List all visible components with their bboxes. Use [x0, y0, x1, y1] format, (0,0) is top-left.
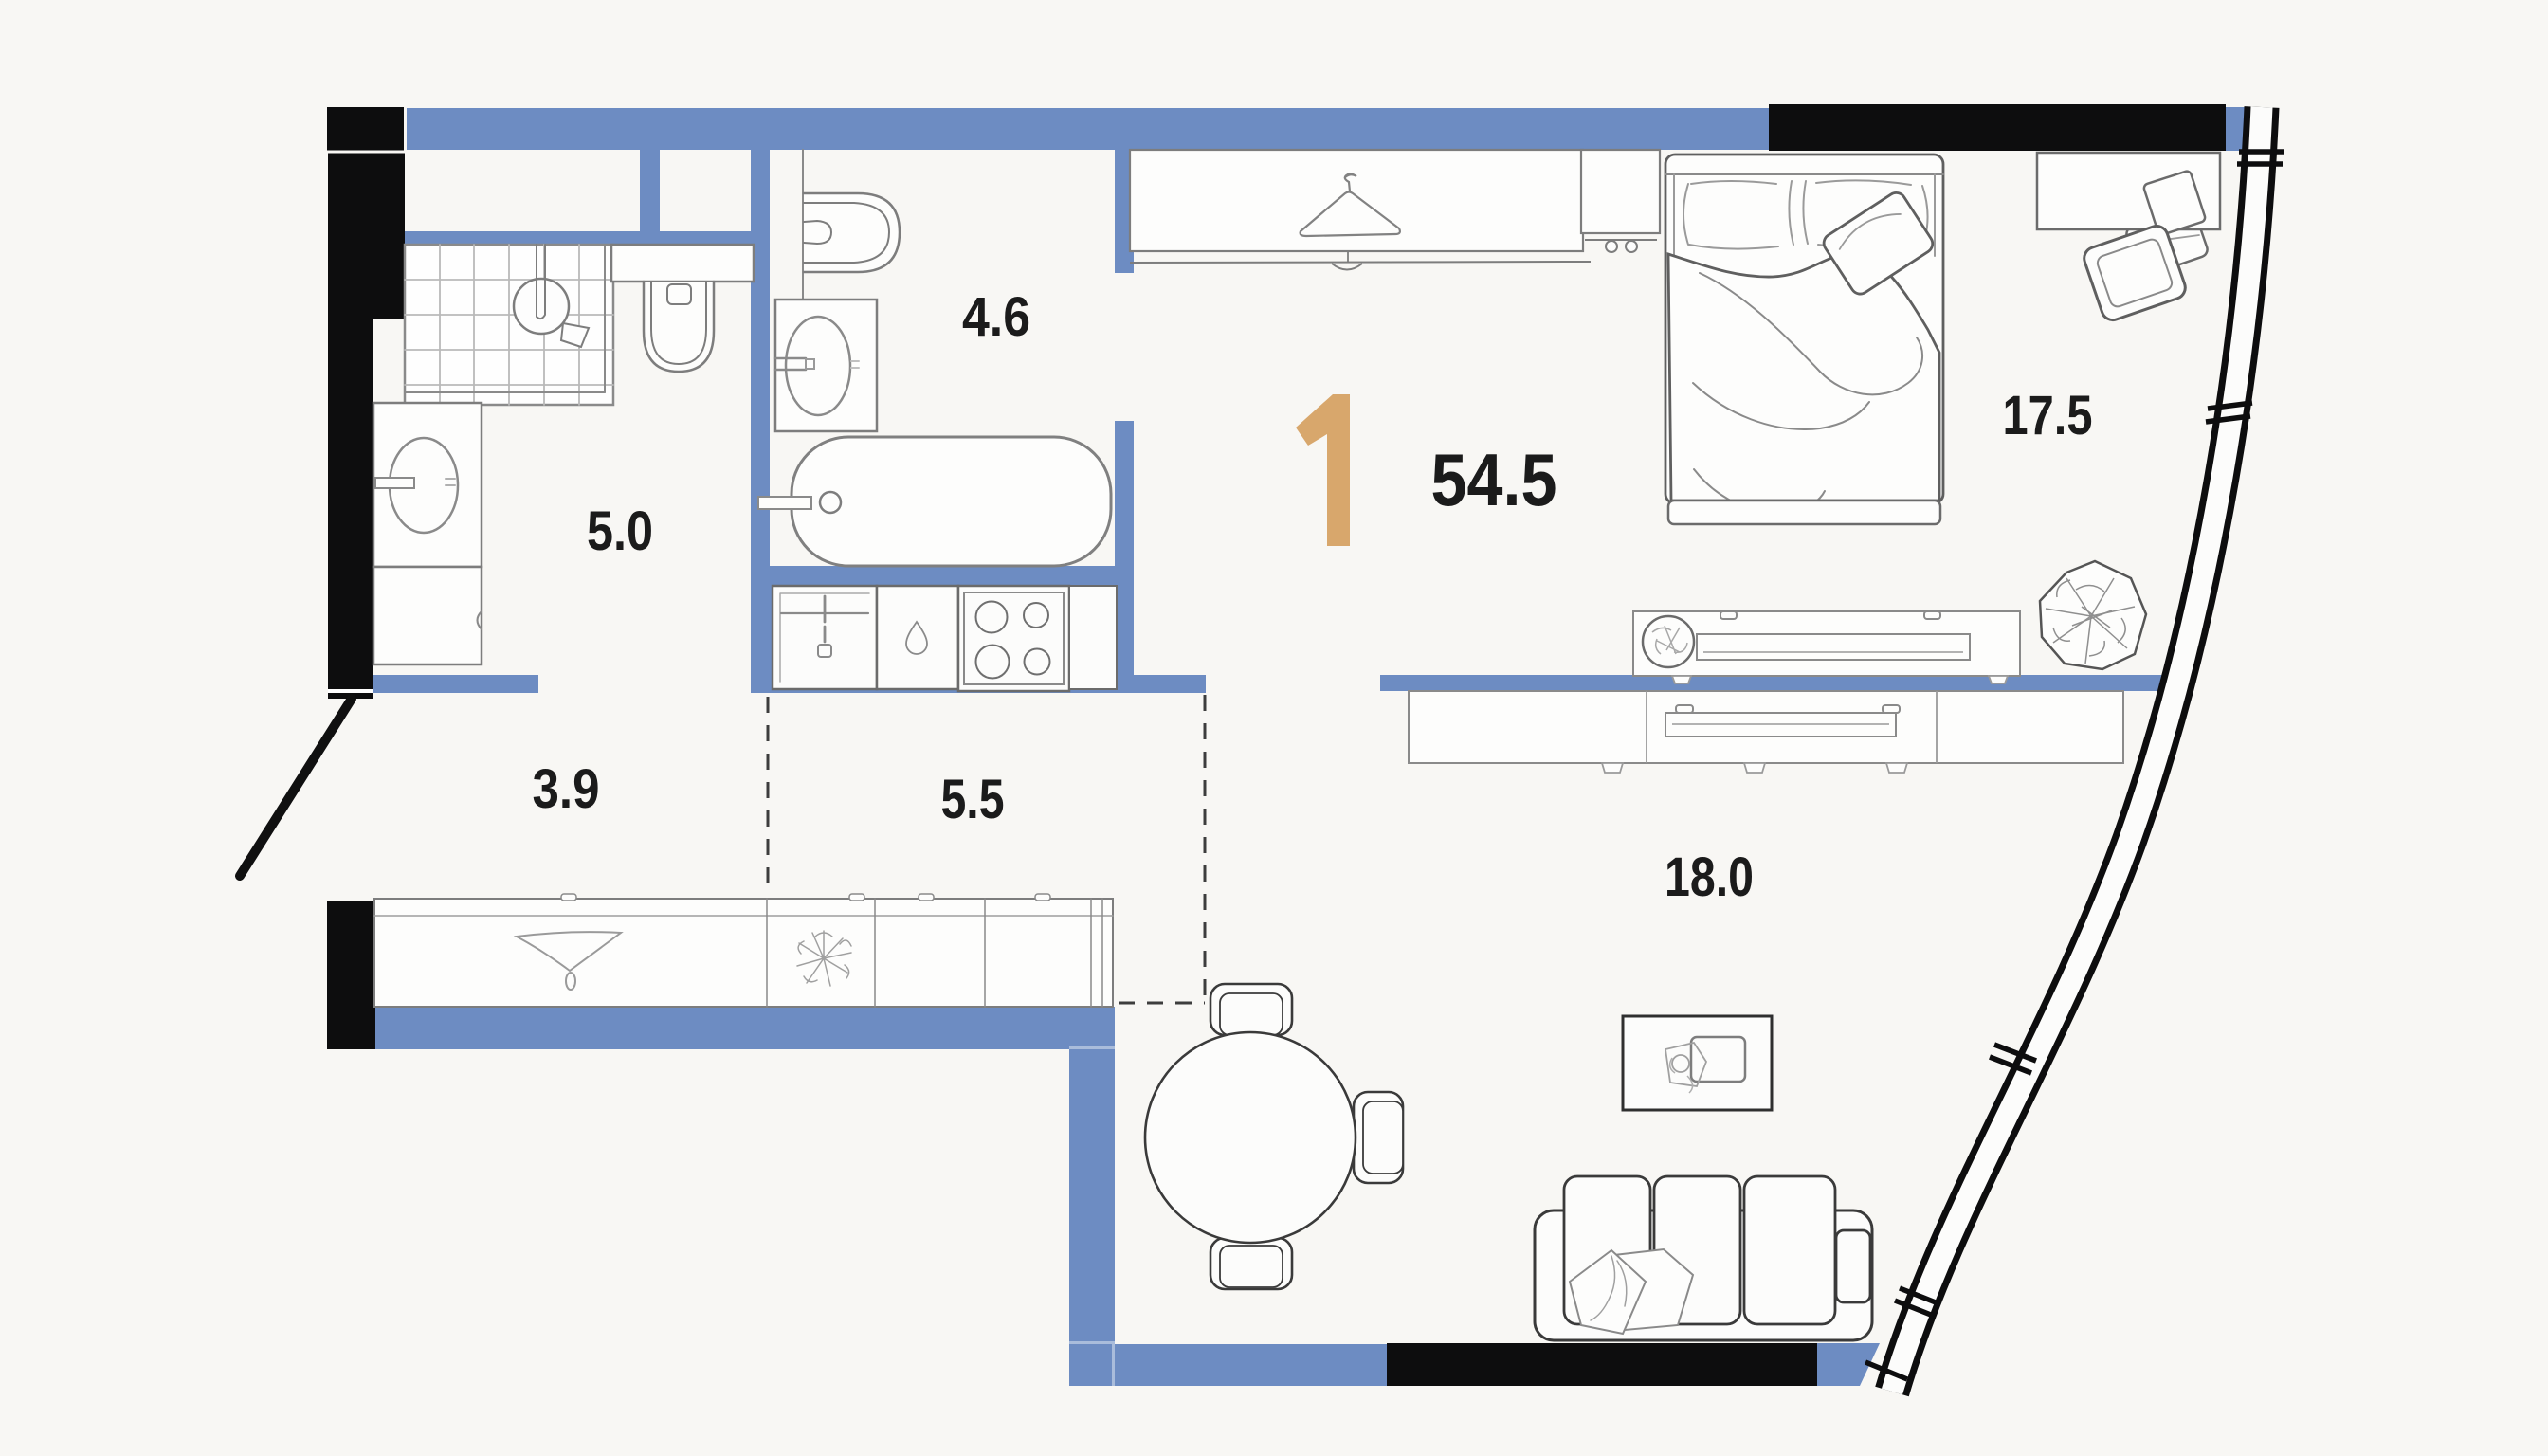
svg-text:17.5: 17.5 [2003, 385, 2093, 446]
svg-text:18.0: 18.0 [1665, 846, 1754, 908]
svg-text:4.6: 4.6 [962, 286, 1030, 348]
svg-text:54.5: 54.5 [1431, 438, 1557, 521]
svg-text:5.0: 5.0 [587, 500, 653, 562]
svg-text:5.5: 5.5 [941, 769, 1005, 830]
svg-text:3.9: 3.9 [533, 758, 600, 820]
